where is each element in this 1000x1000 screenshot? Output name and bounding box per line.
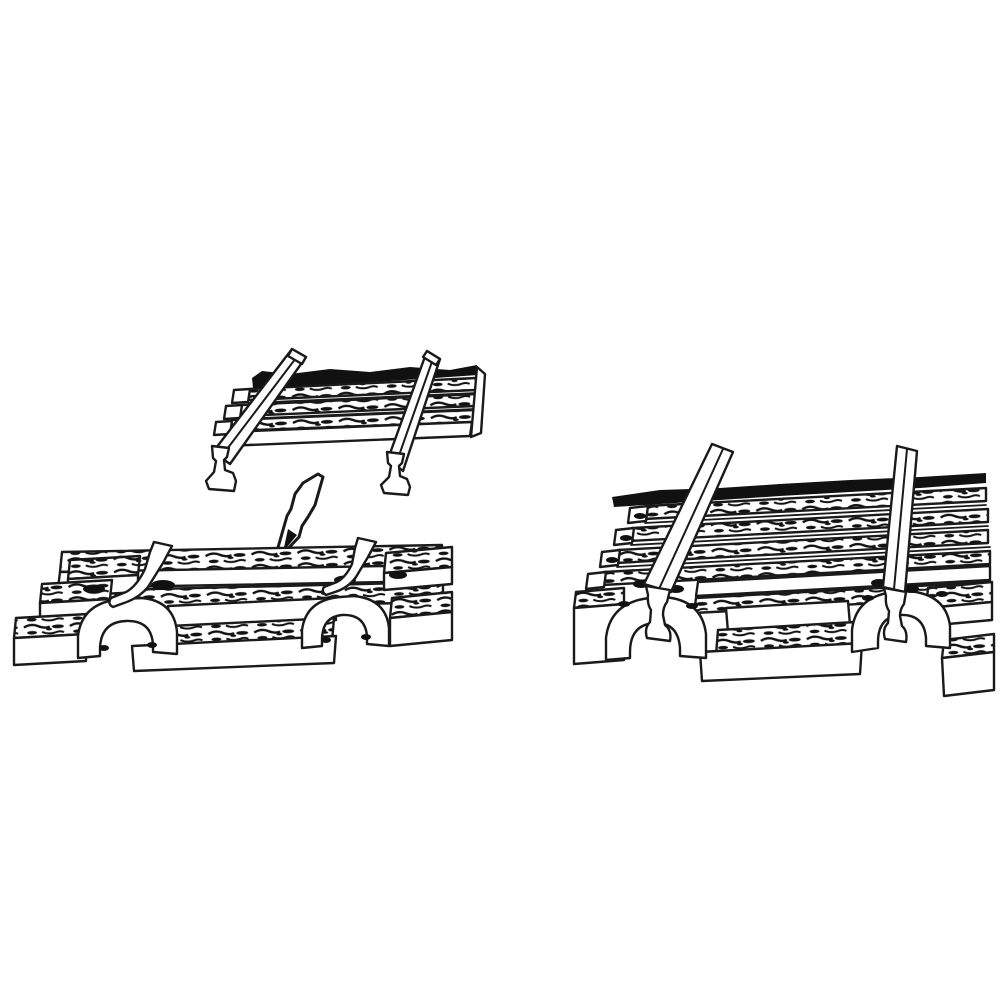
track-right-block-face bbox=[942, 652, 994, 696]
shadow-blob bbox=[321, 637, 331, 643]
shadow-blob bbox=[99, 645, 109, 651]
shadow-blob bbox=[389, 571, 407, 579]
rail-chair-arch bbox=[78, 598, 177, 658]
illustration-canvas bbox=[0, 0, 1000, 1000]
shadow-blob bbox=[634, 513, 646, 519]
tie-end-cap bbox=[232, 389, 250, 403]
shadow-blob bbox=[361, 634, 371, 640]
shadow-blob bbox=[606, 557, 618, 563]
base-step-face bbox=[14, 634, 86, 665]
tie-end-cap bbox=[586, 572, 606, 589]
shadow-blob bbox=[936, 591, 948, 597]
sleeper-base bbox=[14, 538, 452, 671]
arrow-outline bbox=[277, 474, 323, 556]
track-assembly-illustration bbox=[0, 0, 1000, 1000]
shadow-blob bbox=[620, 535, 632, 541]
shadow-blob bbox=[83, 585, 105, 594]
shadow-blob bbox=[618, 601, 630, 607]
shadow-blob bbox=[151, 580, 175, 590]
assembled-track-section bbox=[574, 444, 994, 696]
base-right-block-face bbox=[390, 612, 452, 646]
shadow-blob bbox=[686, 603, 698, 609]
shadow-blob bbox=[147, 642, 157, 648]
insertion-arrow-icon bbox=[277, 474, 323, 556]
shadow-blob bbox=[862, 595, 874, 601]
